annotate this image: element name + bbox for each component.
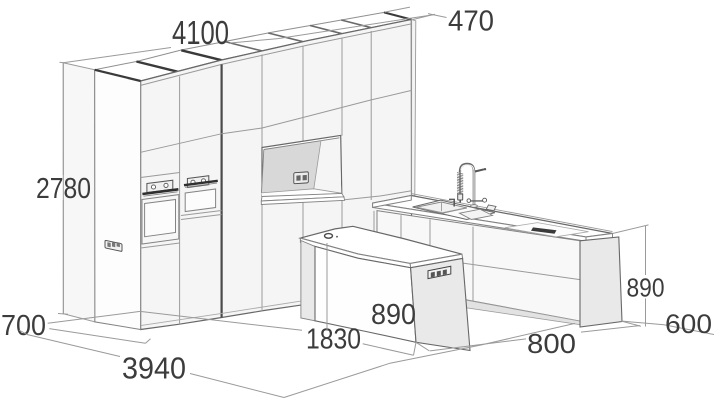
svg-text:2780: 2780 [36, 173, 91, 205]
svg-text:470: 470 [448, 6, 494, 38]
svg-text:800: 800 [527, 328, 576, 359]
svg-text:890: 890 [627, 272, 665, 302]
svg-text:1830: 1830 [306, 324, 361, 356]
svg-text:3940: 3940 [122, 351, 186, 386]
svg-text:890: 890 [371, 299, 416, 331]
svg-text:4100: 4100 [172, 14, 229, 51]
svg-text:600: 600 [665, 309, 712, 339]
